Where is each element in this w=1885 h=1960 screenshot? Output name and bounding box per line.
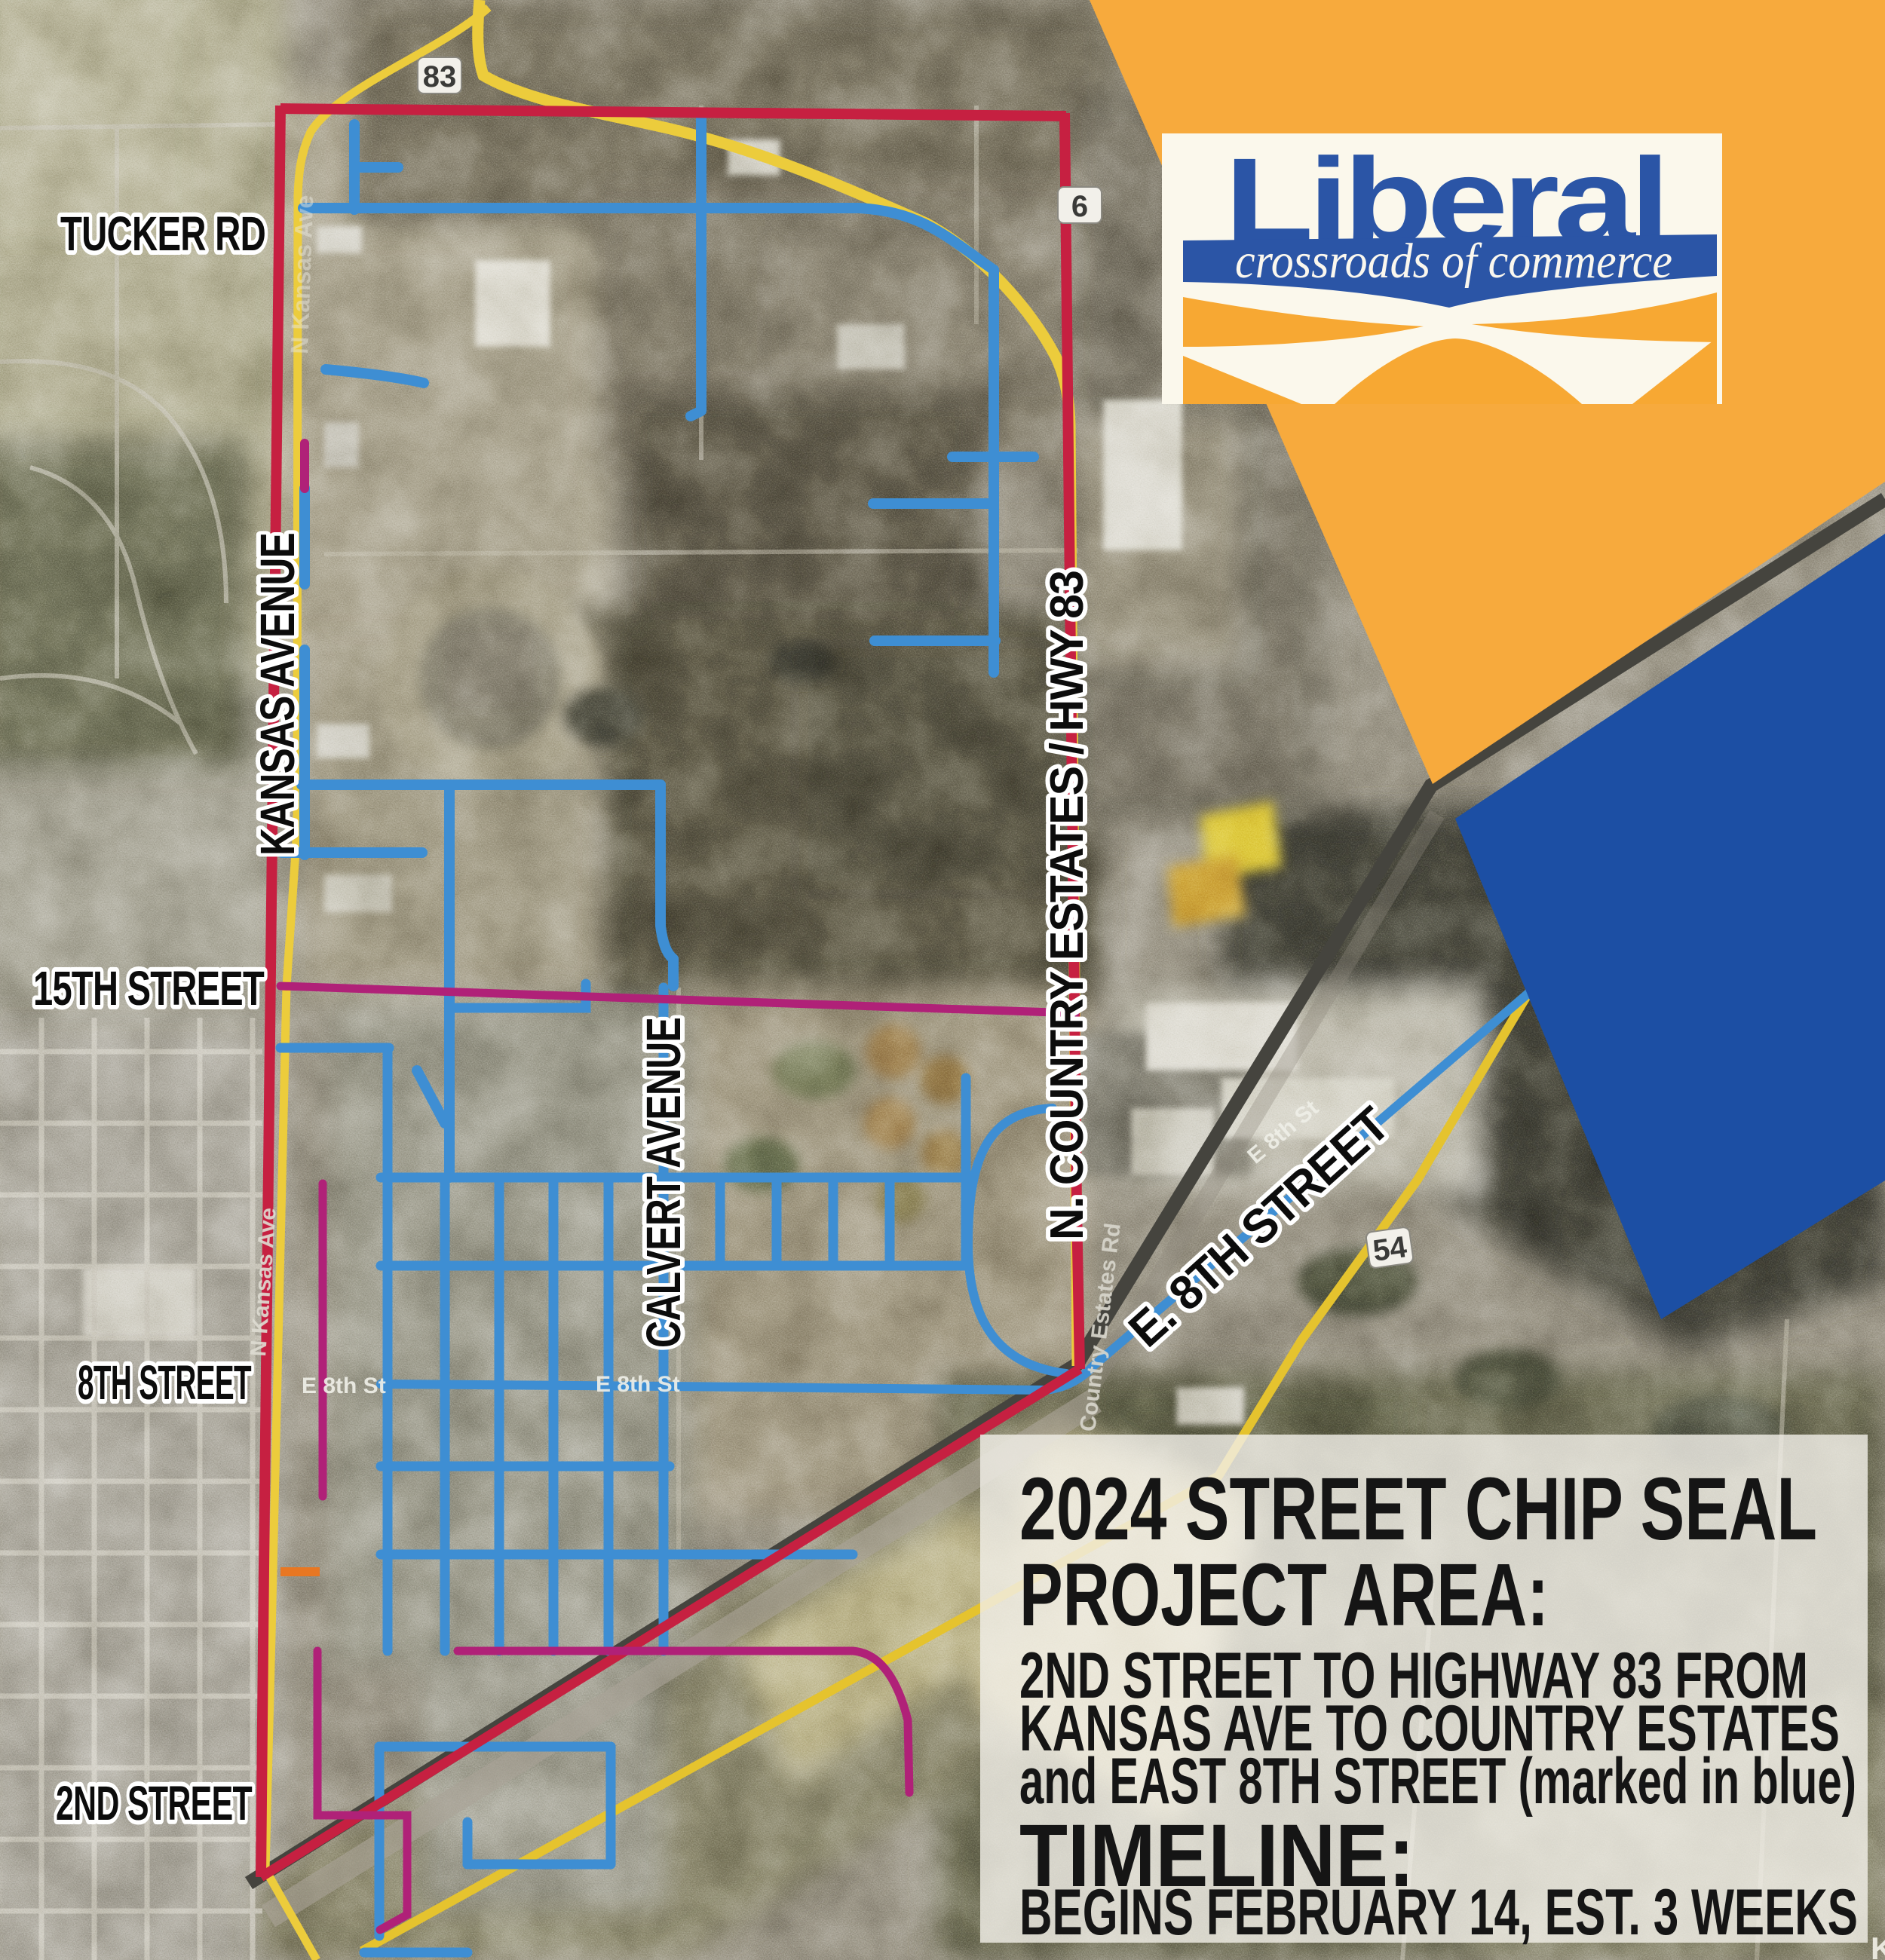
svg-text:KANSAS AVENUE: KANSAS AVENUE: [250, 533, 305, 856]
svg-text:E 8th St: E 8th St: [596, 1372, 680, 1397]
svg-text:2ND STREET: 2ND STREET: [56, 1776, 253, 1830]
svg-text:8TH STREET: 8TH STREET: [78, 1355, 252, 1410]
svg-text:BEGINS FEBRUARY 14, EST. 3 WEE: BEGINS FEBRUARY 14, EST. 3 WEEKS: [1019, 1876, 1858, 1949]
svg-text:K: K: [1871, 1931, 1885, 1960]
svg-text:crossroads of commerce: crossroads of commerce: [1235, 234, 1672, 289]
svg-text:N. COUNTRY ESTATES / HWY 83: N. COUNTRY ESTATES / HWY 83: [1041, 571, 1093, 1240]
svg-text:E 8th St: E 8th St: [302, 1374, 386, 1398]
svg-text:54: 54: [1371, 1230, 1409, 1268]
svg-text:CALVERT AVENUE: CALVERT AVENUE: [636, 1018, 691, 1348]
svg-text:N Kansas Ave: N Kansas Ave: [286, 194, 318, 354]
svg-text:PROJECT AREA:: PROJECT AREA:: [1019, 1545, 1549, 1645]
svg-text:2024 STREET CHIP SEAL: 2024 STREET CHIP SEAL: [1019, 1459, 1817, 1559]
svg-text:15TH STREET: 15TH STREET: [33, 961, 265, 1015]
svg-text:TUCKER RD: TUCKER RD: [60, 207, 265, 261]
svg-text:83: 83: [423, 60, 457, 93]
svg-text:6: 6: [1071, 190, 1088, 223]
